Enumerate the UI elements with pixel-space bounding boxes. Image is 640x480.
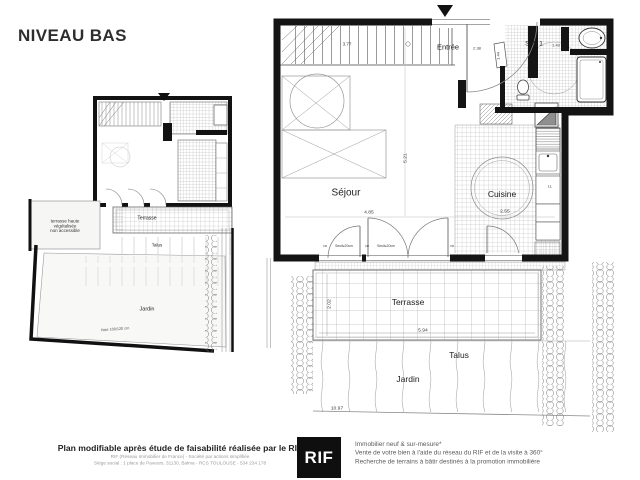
room-label-sejour: Séjour — [332, 188, 361, 199]
roof-terrace-line3: non accessible — [50, 228, 80, 233]
dim-cuisine-width: 2.55 — [500, 208, 510, 214]
footer-services-line2: Vente de votre bien à l'aide du réseau d… — [355, 449, 543, 458]
dim-sejour-depth: 5.21 — [402, 153, 408, 163]
dim-entree-depth: 1.44 — [496, 52, 501, 60]
footer-services-line3: Recherche de terrains à bâtir destinés à… — [355, 458, 543, 467]
small-hedge — [205, 235, 217, 352]
terrasse-label: Terrasse — [392, 297, 425, 307]
dim-sde-width: 1.43 — [552, 43, 560, 48]
small-terrace — [113, 207, 232, 233]
footer-services-line1: Immobilier neuf & sur-mesure* — [355, 440, 543, 449]
vr-label-2: VR — [365, 244, 369, 247]
wc-icon — [518, 80, 529, 94]
footer-services: Immobilier neuf & sur-mesure* Vente de v… — [355, 440, 543, 467]
bathroom — [494, 25, 607, 108]
staircase — [280, 22, 455, 65]
main-plan-drawing — [255, 0, 640, 432]
footer-disclaimer: Plan modifiable après étude de faisabili… — [58, 443, 303, 453]
dim-jardin-width: 10.97 — [331, 405, 343, 411]
vr-label-1: VR — [323, 244, 327, 247]
dim-sejour-width: 4.85 — [364, 209, 374, 215]
footer-company-info: RIF (Réseau Immobilier de France) - Soci… — [94, 454, 266, 466]
small-talus-label: Talus — [152, 243, 163, 248]
shower-icon — [577, 57, 606, 102]
page-title: NIVEAU BAS — [18, 26, 127, 46]
seuil-label-2: Seuil≤20cm — [377, 244, 395, 248]
vr-label-3: VR — [450, 244, 454, 247]
corner-unit — [535, 103, 558, 127]
boundary-hedge — [592, 262, 614, 432]
hob-icon — [536, 128, 560, 149]
jardin-label: Jardin — [396, 374, 419, 384]
dim-stairs: 3.77 — [343, 42, 352, 47]
room-label-cuisine: Cuisine — [488, 189, 516, 199]
room-label-entree: Entrée — [437, 43, 459, 52]
left-hedge — [291, 276, 313, 394]
small-roof-terrace-label: terrasse haute végétalisée non accessibl… — [50, 219, 80, 233]
floor-plan-sheet: NIVEAU BAS — [0, 0, 640, 480]
small-terrasse-label: Terrasse — [137, 215, 156, 221]
small-jardin-label: Jardin — [140, 306, 155, 312]
entry-marker-icon — [437, 5, 453, 17]
dim-entree-width: 2.38 — [473, 46, 481, 51]
rif-logo: RIF — [297, 437, 341, 478]
small-apartment — [95, 93, 230, 207]
dim-terrasse-width: 5.94 — [418, 327, 428, 333]
rif-logo-text: RIF — [305, 448, 334, 468]
footer-company-line2: Siège social : 1 place de Paveurs, 31130… — [94, 460, 266, 466]
washer-box — [536, 176, 560, 204]
dim-terrasse-depth: 2.02 — [326, 299, 332, 309]
seuil-label-1: Seuil≤20cm — [335, 244, 353, 248]
washer-label: LL — [548, 184, 552, 189]
talus-label: Talus — [449, 350, 469, 360]
room-label-sde: SdE 1 — [525, 41, 543, 48]
